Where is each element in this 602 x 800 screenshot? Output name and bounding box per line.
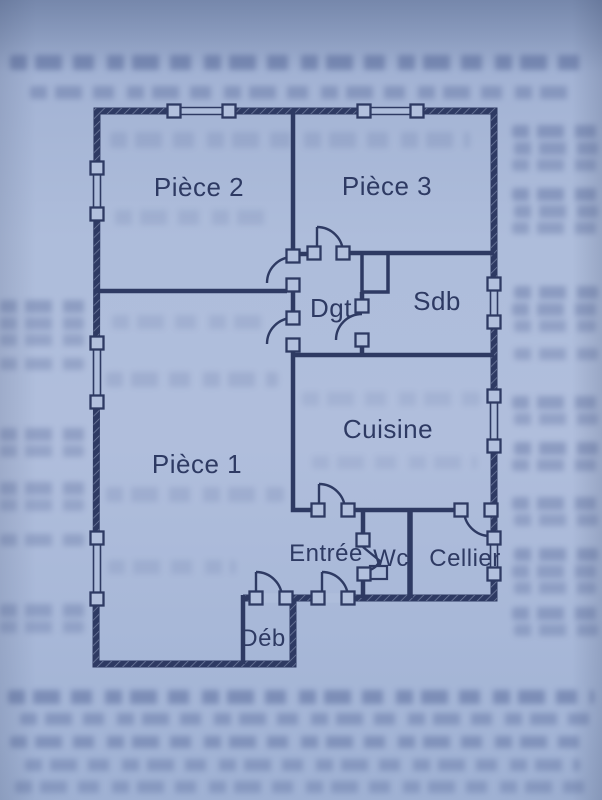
room-label-cellier: Cellier [429, 545, 501, 572]
room-label-entree: Entrée [289, 540, 363, 567]
room-label-wc: Wc [373, 545, 409, 572]
room-label-cuisine: Cuisine [343, 414, 433, 444]
scanned-page: Pièce 2 Pièce 3 Dgt Sdb Cuisine Pièce 1 … [0, 0, 602, 800]
room-label-piece-2: Pièce 2 [154, 172, 244, 202]
floor-plan: Pièce 2 Pièce 3 Dgt Sdb Cuisine Pièce 1 … [0, 0, 602, 800]
room-label-deb: Déb [240, 625, 286, 652]
room-label-piece-3: Pièce 3 [342, 171, 432, 201]
duct-shaft [362, 255, 388, 292]
room-label-piece-1: Pièce 1 [152, 449, 242, 479]
room-label-dgt: Dgt [310, 293, 352, 323]
room-label-sdb: Sdb [413, 286, 461, 316]
